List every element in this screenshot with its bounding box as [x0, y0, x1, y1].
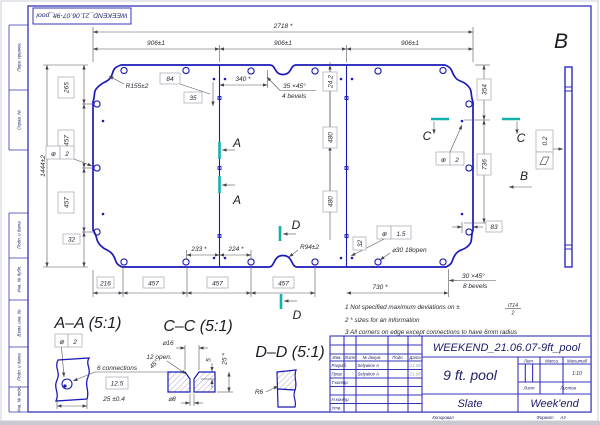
dim-cc-12-open: 12 open. [146, 354, 171, 361]
dim-354: 354 [482, 84, 489, 95]
dim-bevel-count: 8 bevels [463, 283, 488, 290]
dim-24-2: 24.2 [328, 75, 335, 89]
note-1-frac-bottom: 2 [511, 311, 515, 317]
header-sheets: Листов [559, 386, 576, 391]
dim-457: 457 [278, 281, 289, 288]
position-icon: ⊕ [440, 157, 446, 164]
dim-r94: R94±2 [300, 244, 319, 251]
format-label: Формат [536, 415, 553, 420]
dim-480: 480 [328, 196, 335, 207]
section-c-marks: C C [423, 119, 526, 145]
bevel-note-8: 30 ×45° 8 bevels [449, 272, 496, 290]
detail-d-d-title: D–D (5:1) [255, 344, 324, 361]
dim-340: 340 * [235, 76, 251, 83]
format-value: A3 [559, 415, 566, 420]
scale-value: 1:10 [572, 371, 582, 377]
view-b-title: B [554, 30, 568, 53]
header-scale: Масштаб [567, 359, 588, 364]
col-list: Лист [343, 355, 355, 360]
detail-c-c: C–C (5:1) ⌀16 12 open. 45° 5 25 * ⌀8 [146, 318, 233, 406]
dim-83: 83 [490, 224, 498, 231]
dd-piece-top [277, 370, 296, 390]
row-date: 21.06 [409, 363, 422, 368]
col-doc: № докум. [363, 355, 382, 360]
dim-bevel-30x45: 30 ×45° [462, 272, 485, 280]
footer: Копировал Формат A3 [432, 415, 566, 420]
row-role: Разраб. [332, 363, 348, 368]
header-sheet: Лист [522, 386, 534, 391]
dim-233: 233 * [190, 246, 207, 253]
dim-pos-2: 2 [72, 339, 77, 346]
dim-bevel-35x45: 35 ×45° [283, 82, 306, 90]
dim-bevel-count: 4 bevels [282, 93, 307, 100]
dim-457: 457 [212, 281, 223, 288]
section-a-marks: A A [220, 136, 242, 207]
dim-32: 32 [68, 237, 76, 244]
detail-a-a-title: A–A (5:1) [54, 315, 122, 332]
dd-piece-bottom [278, 389, 296, 407]
dim-cc-5: 5 [206, 358, 213, 362]
note-3: 3 All corners on edge except connections… [345, 329, 518, 336]
section-d-marks: D D [280, 218, 302, 322]
dim-12-5: 12.5 [111, 381, 124, 388]
row-role: Н.контр. [332, 397, 350, 402]
section-letter-c: C [423, 129, 432, 143]
dim-cc-25: 25 * [222, 353, 229, 366]
note-1-frac-top: IT14 [508, 303, 518, 309]
cc-block-left [168, 372, 190, 392]
flipped-doc-number: WEEKEND_21.06.07-9ft_pool [36, 12, 128, 19]
dim-457: 457 [148, 281, 159, 288]
dim-32: 32 [357, 240, 364, 248]
row-role: Т.контр. [332, 380, 349, 385]
dim-224: 224 * [227, 246, 244, 253]
position-icon: ⊕ [381, 231, 387, 238]
position-tolerance-left: ⊕ 2 [46, 146, 92, 166]
col-izm: Изм. [332, 355, 341, 360]
dim-265: 265 [64, 82, 71, 94]
sidebar-label: Взам. инв. № [17, 309, 22, 336]
row-role: Утв. [332, 406, 342, 411]
doc-number: WEEKEND_21.06.07-9ft_pool [433, 342, 581, 354]
dim-segment-width: 906±1 [401, 40, 419, 47]
note-2: 2 * sizes for an information [344, 317, 420, 324]
dim-cc-d16: ⌀16 [162, 340, 174, 347]
title-block: Изм. Лист № докум. Подп. Дата Разраб. Se… [330, 336, 591, 412]
sidebar-label: Справ. № [17, 110, 22, 130]
company: Week'end [530, 398, 579, 410]
sidebar-label: Перв. примен. [17, 42, 22, 71]
detail-d-d: D–D (5:1) R6 [255, 344, 325, 407]
copied-label: Копировал [432, 415, 454, 420]
drawing-canvas: Перв. примен. Справ. № Подп. и дата Инв.… [0, 0, 600, 425]
section-letter-d: D [292, 218, 301, 232]
dim-480: 480 [328, 132, 335, 143]
detail-c-c-title: C–C (5:1) [163, 318, 232, 335]
section-letter-a: A [232, 193, 241, 207]
section-letter-d: D [293, 308, 302, 322]
dimension-lines: 2718 * 906±1 906±1 906±1 1444±2 265 457 … [40, 23, 502, 297]
view-letter-b: B [520, 169, 528, 183]
dim-84: 84 [166, 76, 174, 83]
note-1: 1 Not specified maximum deviations on ± [345, 304, 460, 311]
header-lit: Лит. [523, 359, 534, 364]
dim-cc-d8: ⌀8 [168, 396, 176, 403]
view-b-arrow: B [509, 169, 532, 187]
position-tolerance-aa: ⊕ 2 [55, 334, 82, 377]
col-podp: Подп. [392, 355, 403, 360]
dim-35: 35 [189, 95, 197, 102]
section-marks: A A C C D D B [220, 119, 533, 322]
dim-pos-2: 2 [454, 157, 459, 164]
row-name: Selyakov A [358, 372, 379, 377]
sidebar-label: Инв. № подл. [17, 385, 22, 412]
section-letter-a: A [232, 136, 241, 150]
position-icon: ⊕ [50, 151, 56, 158]
sidebar-labels: Перв. примен. Справ. № Подп. и дата Инв.… [17, 42, 22, 412]
row-role: Пров. [332, 372, 343, 377]
dim-dd-r6: R6 [255, 389, 264, 396]
bevel-note-4: 35 ×45° 4 bevels [267, 77, 316, 100]
view-b: B 0.2 [536, 30, 572, 267]
dim-25-04: 25 ±0.4 [102, 396, 125, 403]
dim-pos-1-5: 1.5 [396, 231, 405, 238]
position-tolerance-right: ⊕ 2 [436, 125, 464, 165]
dim-pos-2: 2 [64, 151, 69, 158]
col-data: Дата [408, 355, 421, 360]
dim-r155: R155±2 [126, 83, 149, 90]
dim-overall-width: 2718 * [273, 23, 293, 30]
dim-segment-width: 906±1 [147, 40, 165, 47]
aa-section-piece [56, 358, 90, 401]
part-name: 9 ft. pool [443, 367, 498, 383]
dim-216: 216 [99, 281, 111, 288]
flipped-designation: WEEKEND_21.06.07-9ft_pool [33, 8, 131, 24]
row-name: Selyakov A [358, 363, 379, 368]
technical-notes: 1 Not specified maximum deviations on ± … [344, 303, 521, 336]
section-letter-c: C [517, 131, 526, 145]
header-mass: Масса [545, 359, 558, 364]
seam-connection-marks [218, 97, 348, 238]
dim-457: 457 [64, 197, 71, 208]
row-date: 21.06 [409, 372, 422, 377]
sidebar-label: Инв. № дубл. [17, 265, 22, 292]
connections-note: 6 connections [97, 365, 138, 372]
dim-flatness-0-2: 0.2 [542, 136, 549, 145]
dim-730: 730 * [372, 284, 388, 291]
dim-457: 457 [64, 135, 71, 146]
sidebar-label: Подп. и дата [17, 353, 22, 381]
dim-segment-width: 906±1 [274, 40, 292, 47]
dim-736: 736 [482, 159, 489, 170]
flatness-tolerance-frame: 0.2 [536, 130, 563, 169]
dim-holes-d30: ⌀30 18open [392, 247, 427, 254]
note-1-fraction: IT14 2 [505, 303, 521, 317]
sidebar-label: Подп. и дата [17, 221, 22, 249]
drawing-sheet: Перв. примен. Справ. № Подп. и дата Инв.… [0, 0, 600, 425]
position-icon: ⊕ [59, 339, 65, 346]
material: Slate [457, 398, 482, 410]
